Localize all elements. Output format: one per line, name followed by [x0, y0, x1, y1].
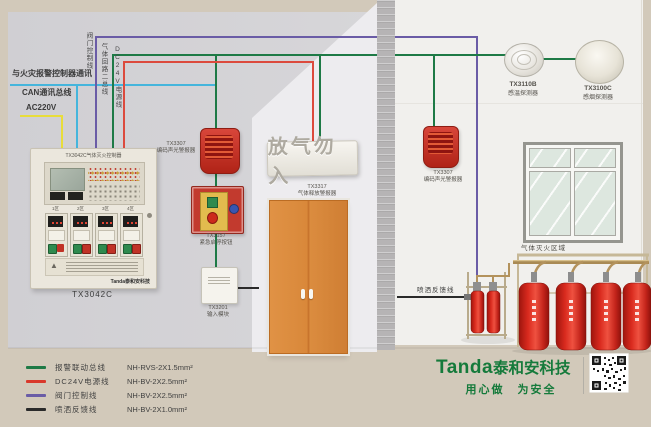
window-pane: [529, 171, 571, 236]
loop-bus-drop-strobe-right: [433, 54, 435, 126]
warning-text-lines: [66, 262, 138, 272]
loop-bus-detector-link: [542, 58, 576, 60]
legend-name: 阀门控制线: [55, 390, 127, 401]
panel-model-label: TX3042C: [30, 290, 155, 299]
strobe-grille: [428, 132, 453, 154]
spray-feedback-label: 喷洒反馈线: [417, 287, 455, 294]
panel-keypad[interactable]: [88, 184, 140, 201]
starter-cylinders: [471, 291, 500, 333]
valve-control-wire-riser: [95, 36, 97, 148]
legend-row: DC24V电源线 NH-BV-2X2.5mm²: [26, 376, 193, 386]
zone-label: 2区: [70, 206, 91, 212]
panel-title: TX3042C气体灭火控制器: [31, 152, 156, 159]
legend-spec: NH-RVS-2X1.5mm²: [127, 363, 193, 372]
panel-lcd-screen: [50, 168, 85, 191]
zone-stop-button[interactable]: [82, 244, 91, 254]
door-handle-left[interactable]: [301, 289, 305, 299]
zone-display: [73, 216, 88, 227]
zone-stop-button[interactable]: [107, 244, 116, 254]
legend-row: 阀门控制线 NH-BV-2X2.5mm²: [26, 390, 193, 400]
brand-logo-cn: 泰和安科技: [493, 360, 571, 377]
module-inscription: [208, 277, 230, 285]
spray-feedback-wire-left: [236, 287, 259, 289]
zone-label: 4区: [120, 206, 141, 212]
heat-detector-model: TX3110B: [495, 81, 551, 90]
smoke-detector: [575, 40, 624, 84]
gas-release-sign-label: TX3317 气体释放警报器: [289, 184, 345, 199]
strobe-grille: [205, 135, 233, 159]
strobe-right-label: TX3307 编码声光警报器: [417, 170, 469, 185]
valve-control-label: 阀门控制线: [83, 32, 93, 70]
zone-module-4: 4区: [120, 206, 141, 257]
sign-name: 气体释放警报器: [289, 191, 345, 198]
strobe-right-name: 编码声光警报器: [417, 177, 469, 184]
comm-label: 与火灾报警控制器通讯: [12, 69, 92, 78]
window-pane: [574, 148, 616, 168]
panel-door-lock[interactable]: [147, 213, 152, 218]
legend-row: 喷洒反馈线 NH-BV-2X1.0mm²: [26, 404, 193, 414]
zone-module-1: 1区: [45, 206, 66, 257]
detector-ring-inner: [517, 54, 531, 65]
window-pane: [574, 171, 616, 236]
spray-feedback-wire-right: [397, 296, 464, 298]
wall-corner-column: [377, 0, 395, 350]
zone-display: [98, 216, 113, 227]
strobe-alarm-right: [423, 126, 459, 168]
legend-spec: NH-BV-2X2.5mm²: [127, 391, 187, 400]
panel-display-unit: [44, 162, 145, 205]
emergency-start-stop-button: [191, 186, 244, 234]
zone-display: [123, 216, 138, 227]
zone-sticker: [98, 230, 115, 241]
legend-swatch-black: [26, 408, 46, 411]
smoke-detector-model: TX3100C: [570, 85, 626, 94]
zone-stop-button[interactable]: [57, 244, 64, 252]
estop-name: 紧急启停按钮: [186, 240, 246, 247]
estop-label: TX3157 紧急启停按钮: [186, 233, 246, 248]
ac220v-wire-vertical: [61, 115, 63, 148]
zone-module-3: 3区: [95, 206, 116, 257]
estop-start-button[interactable]: [207, 197, 218, 208]
cylinder-valves: [531, 272, 641, 282]
legend-name: 喷洒反馈线: [55, 404, 127, 415]
dc24v-label: DC24V电源线: [112, 46, 122, 109]
input-module-label: TX3201 输入模块: [193, 305, 243, 320]
gas-release-sign: 放气勿入: [267, 140, 359, 177]
gas-loop-bus-label: 气体回路二总线: [98, 43, 108, 96]
legend-row: 报警联动总线 NH-RVS-2X1.5mm²: [26, 362, 193, 372]
zone-start-button[interactable]: [123, 244, 132, 254]
protected-area-label: 气体灭火区域: [521, 245, 566, 252]
legend-spec: NH-BV-2X2.5mm²: [127, 377, 187, 386]
zone-module-body: [95, 213, 118, 257]
pressure-switch: [464, 294, 471, 300]
panel-seg-display-1: [50, 192, 65, 200]
zone-module-body: [120, 213, 143, 257]
zone-stop-button[interactable]: [132, 244, 141, 254]
strobe-left-name: 编码声光警报器: [155, 148, 197, 155]
panel-seg-display-2: [68, 192, 83, 200]
zone-sticker: [48, 230, 65, 241]
zone-display: [48, 216, 63, 227]
heat-detector-name: 感温探测器: [495, 90, 551, 98]
warning-icon: ▲: [50, 262, 58, 270]
zone-start-button[interactable]: [48, 244, 57, 254]
loop-bus-wire-horizontal: [112, 54, 506, 56]
legend-name: 报警联动总线: [55, 362, 127, 373]
panel-indicator-leds: [88, 167, 140, 181]
brand-slogan: 用心做 为安全: [436, 381, 586, 397]
room-door[interactable]: [269, 200, 348, 354]
zone-label: 1区: [45, 206, 66, 212]
ac220v-wire-horizontal: [20, 115, 62, 117]
footer-divider: [583, 357, 584, 394]
diagram-canvas: 与火灾报警控制器通讯 CAN通讯总线 AC220V 阀门控制线 气体回路二总线 …: [0, 0, 651, 427]
panel-warning-text-block: ▲: [45, 258, 144, 276]
zone-label: 3区: [95, 206, 116, 212]
wire-legend: 报警联动总线 NH-RVS-2X1.5mm² DC24V电源线 NH-BV-2X…: [26, 362, 193, 418]
door-handle-right[interactable]: [309, 289, 313, 299]
window-pane: [529, 148, 571, 168]
ac220v-label: AC220V: [26, 103, 56, 112]
brand-logo: Tanda泰和安科技: [436, 356, 586, 379]
valve-control-wire-horizontal: [95, 36, 478, 38]
strobe-left-label: TX3307 编码声光警报器: [155, 141, 197, 156]
legend-swatch-red: [26, 380, 46, 383]
small-rack-shadow: [461, 336, 515, 344]
input-module: [201, 267, 238, 304]
zone-module-body: [45, 213, 68, 257]
cylinder-pigtail-pipes: [534, 262, 648, 281]
module-name: 输入模块: [193, 312, 243, 319]
agent-cylinders: [519, 283, 651, 350]
zone-sticker: [123, 230, 140, 241]
dc24v-wire-horizontal: [123, 61, 314, 63]
legend-name: DC24V电源线: [55, 376, 127, 387]
gas-cylinder-assembly: [455, 245, 651, 355]
panel-brand: Tanda泰和安科技: [111, 278, 150, 285]
zone-start-button[interactable]: [73, 244, 82, 254]
zone-start-button[interactable]: [98, 244, 107, 254]
qr-code: [589, 353, 629, 393]
control-panel-tx3042c: TX3042C气体灭火控制器 1区 2区: [30, 148, 157, 289]
smoke-detector-name: 感烟探测器: [570, 94, 626, 102]
heat-detector: [504, 43, 544, 77]
estop-stop-button[interactable]: [207, 212, 218, 224]
smoke-detector-label: TX3100C 感烟探测器: [570, 85, 626, 102]
gas-release-sign-text: 放气勿入: [268, 129, 358, 189]
legend-swatch-purple: [26, 394, 46, 397]
brand-logo-en: Tanda: [436, 357, 493, 378]
legend-spec: NH-BV-2X1.0mm²: [127, 405, 187, 414]
legend-swatch-green: [26, 366, 46, 369]
zone-sticker: [73, 230, 90, 241]
can-bus-label: CAN通讯总线: [22, 88, 71, 97]
loop-bus-drop-strobe-left: [215, 54, 217, 128]
estop-indicator: [229, 204, 239, 214]
dc24v-wire-riser: [123, 61, 125, 148]
can-bus-wire-vertical: [76, 84, 78, 148]
strobe-alarm-left: [200, 128, 240, 174]
room-window: [523, 142, 623, 243]
zone-module-body: [70, 213, 93, 257]
heat-detector-label: TX3110B 感温探测器: [495, 81, 551, 98]
zone-module-2: 2区: [70, 206, 91, 257]
